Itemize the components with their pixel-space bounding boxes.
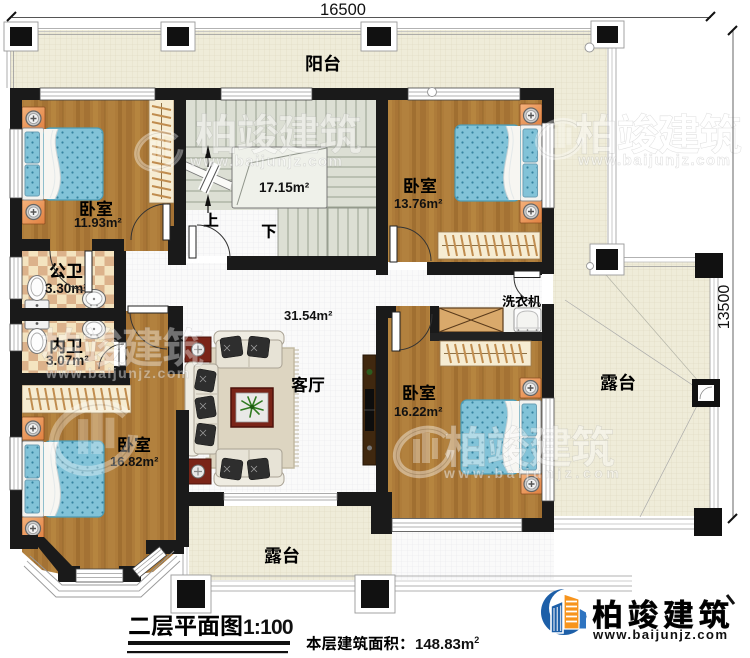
svg-text:www.baijunjz.com: www.baijunjz.com	[577, 152, 731, 169]
svg-text:31.54m²: 31.54m²	[284, 308, 333, 323]
svg-text:www.baijunjz.com: www.baijunjz.com	[45, 365, 191, 381]
svg-text:148.83m2: 148.83m2	[415, 635, 479, 653]
svg-text:www.baijunjz.com: www.baijunjz.com	[592, 627, 728, 642]
svg-text:11.93m²: 11.93m²	[74, 215, 122, 230]
svg-text:13500: 13500	[716, 285, 733, 330]
svg-text:17.15m²: 17.15m²	[259, 180, 310, 195]
svg-text:www.baijunjz.com: www.baijunjz.com	[443, 465, 622, 481]
svg-text:16500: 16500	[320, 1, 366, 19]
svg-text:16.22m²: 16.22m²	[394, 404, 443, 419]
svg-text:1:100: 1:100	[243, 616, 293, 639]
svg-text:13.76m²: 13.76m²	[394, 196, 443, 211]
svg-text:www.baijunjz.com: www.baijunjz.com	[189, 153, 343, 170]
